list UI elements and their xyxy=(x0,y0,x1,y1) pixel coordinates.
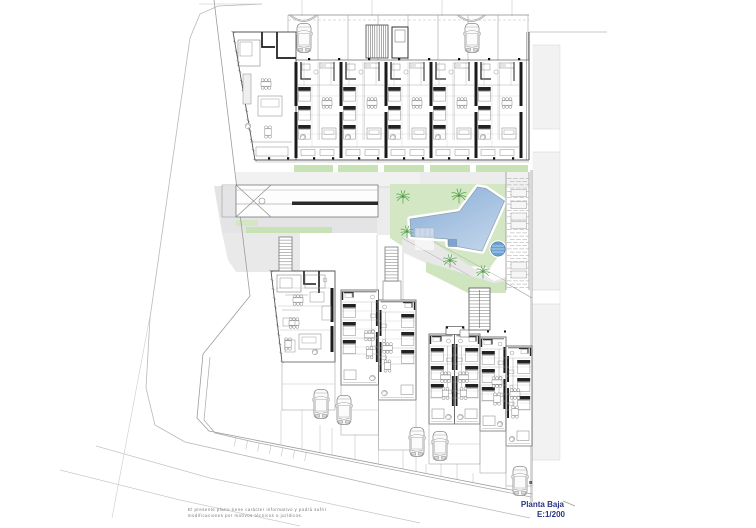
svg-text:modificaciones por motivos téc: modificaciones por motivos técnicos o ju… xyxy=(188,513,303,518)
svg-text:El presente plano tiene ca: El presente plano tiene carácter informa… xyxy=(188,507,327,512)
svg-text:E:1/200: E:1/200 xyxy=(537,510,566,519)
svg-text:Planta Baja: Planta Baja xyxy=(521,500,565,509)
